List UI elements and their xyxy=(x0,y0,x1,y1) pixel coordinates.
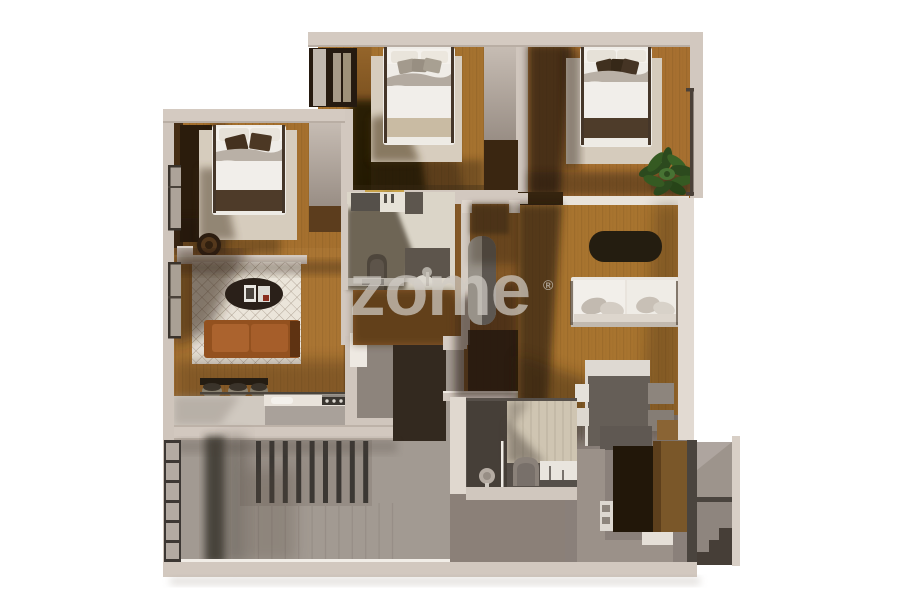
svg-text:zome: zome xyxy=(349,250,530,331)
svg-text:®: ® xyxy=(543,277,554,293)
